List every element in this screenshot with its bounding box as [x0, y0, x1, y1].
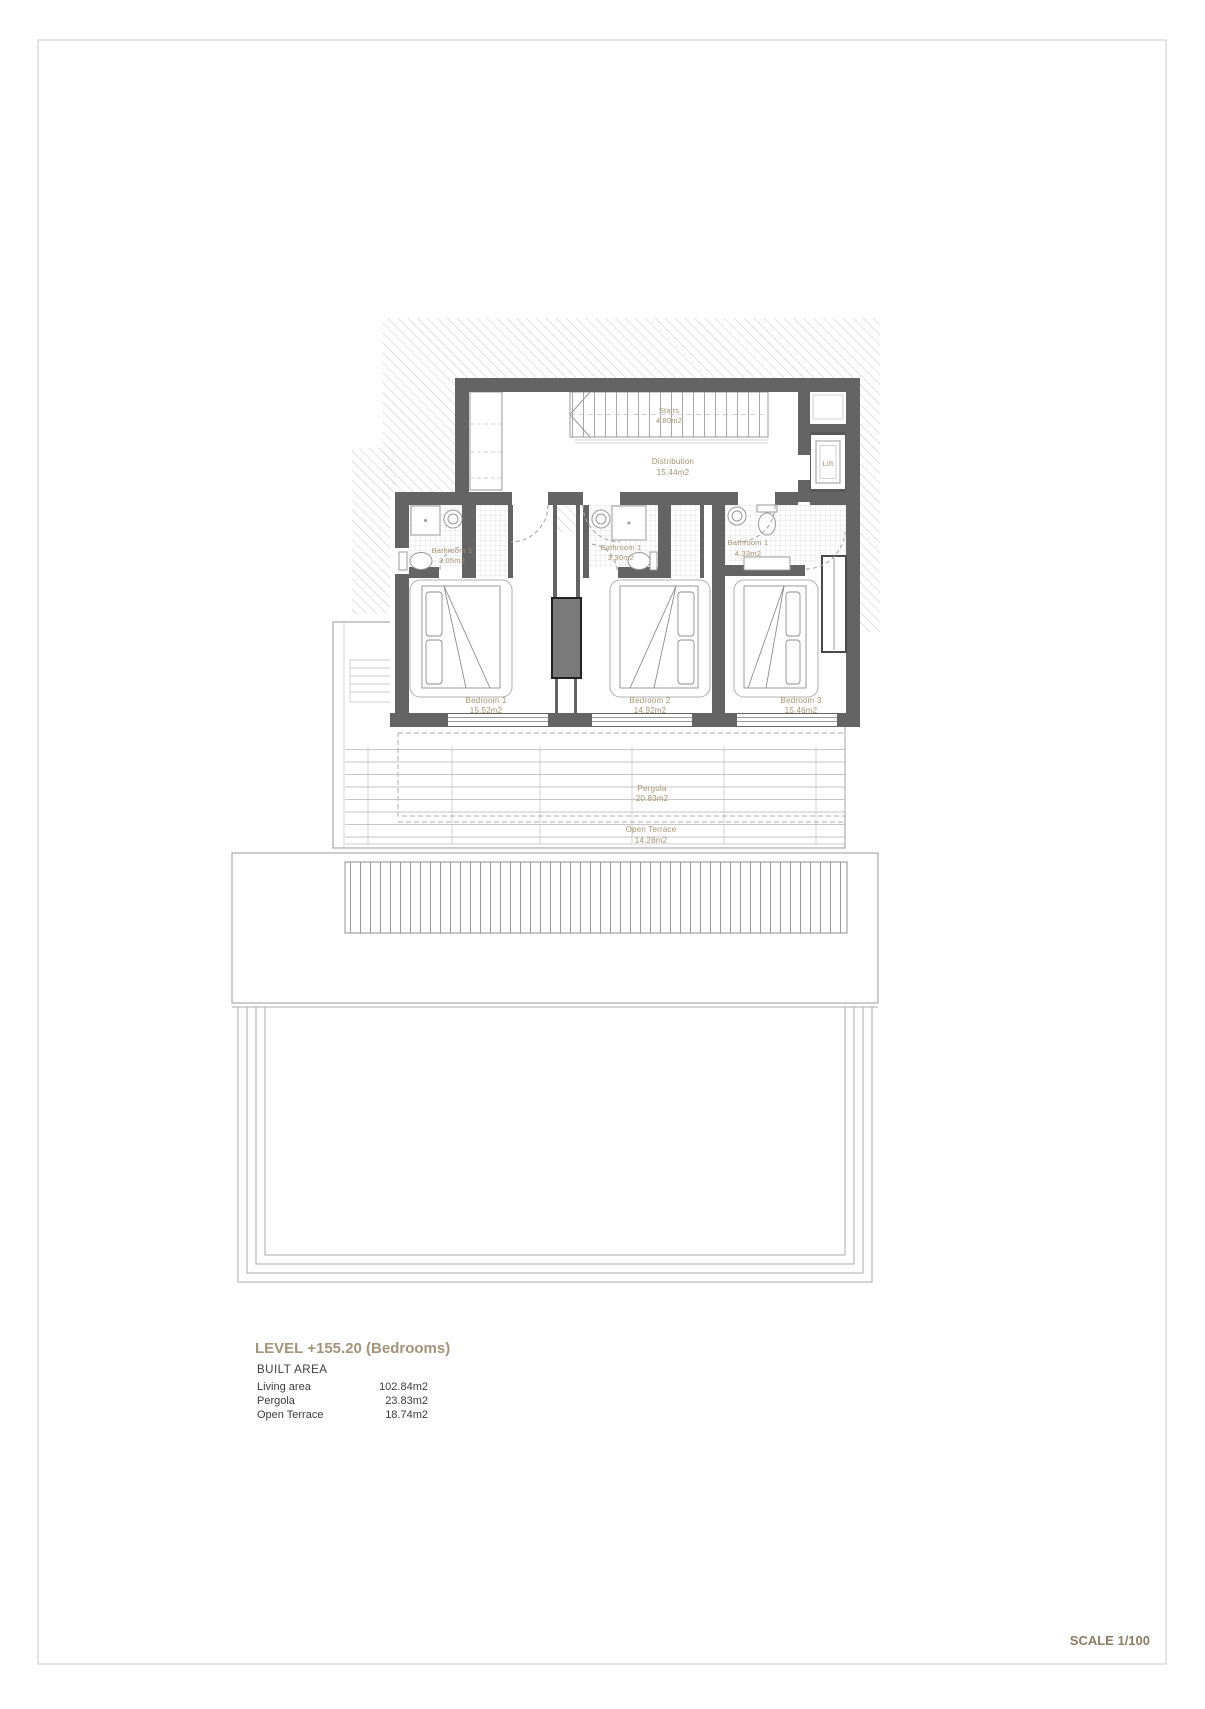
area-row-label: Open Terrace: [257, 1409, 323, 1421]
wall-shaft-west: [553, 505, 557, 598]
lift-label: Lift: [823, 459, 835, 468]
wall-niche-sill: [810, 424, 846, 432]
wall-hall-1: [469, 492, 512, 505]
pergola-label: Pergola: [638, 784, 667, 793]
wall-lift-left-b: [798, 480, 810, 502]
window-bedroom-3: [737, 714, 837, 726]
bathroom2-label: Bathroom 1: [601, 543, 642, 552]
terrace-decking: [345, 746, 845, 844]
lower-level-outline: [232, 853, 878, 1282]
wall-shaft-lower-w: [555, 678, 558, 714]
lift-door-opening: [798, 455, 810, 480]
wall-shaft-east: [576, 505, 580, 598]
wardrobe-strip-1: [476, 505, 508, 578]
bed-icon-bedroom1: [410, 580, 512, 697]
stairs-area: 4.80m2: [656, 416, 682, 425]
area-row-value: 102.84m2: [379, 1381, 428, 1393]
area-row-value: 18.74m2: [385, 1409, 428, 1421]
hatch-top-band: [383, 318, 880, 380]
wall-shaft-lower-e: [574, 678, 577, 714]
shaft-hatch: [557, 505, 576, 532]
toilet-tank-icon: [399, 552, 407, 570]
area-row-value: 23.83m2: [385, 1395, 428, 1407]
wall-west-upper: [455, 392, 469, 502]
scale-label: SCALE 1/100: [1070, 1633, 1150, 1648]
bedroom3-label: Bedroom 3: [781, 696, 822, 705]
wall-jog: [395, 492, 469, 505]
bench-icon: [744, 557, 790, 570]
toilet-icon: [410, 553, 432, 570]
wardrobe-icon: [822, 556, 846, 652]
sheet-border: [38, 40, 1166, 1664]
bed-icon-bedroom2: [610, 580, 710, 697]
bedroom1-area: 15.52m2: [470, 706, 503, 715]
pool-terrace-nested-edges: [232, 1007, 878, 1282]
built-area-table: Living area 102.84m2 Pergola 23.83m2 Ope…: [257, 1381, 428, 1421]
bedroom2-label: Bedroom 2: [630, 696, 671, 705]
wall-hall-3: [620, 492, 738, 505]
bedroom3-area: 15.46m2: [785, 706, 818, 715]
bedroom1-label: Bedroom 1: [466, 696, 507, 705]
wall-north: [455, 378, 860, 392]
bed-icon-bedroom3: [734, 580, 818, 697]
window-bedroom-1: [448, 714, 548, 726]
wall-bed2-bed3: [712, 505, 725, 713]
toilet-icon: [759, 513, 776, 535]
exterior-steps: [350, 660, 394, 702]
floor-plan-drawing: Stairs 4.80m2 Distribution 15.44m2 Lift …: [0, 0, 1205, 1704]
wall-east: [846, 392, 860, 713]
louvre-panel: [345, 862, 847, 933]
hatch-right-band: [858, 380, 880, 632]
toilet-tank-icon: [757, 505, 777, 512]
wall-bath1-east: [462, 505, 476, 578]
distribution-label: Distribution: [652, 457, 694, 466]
wall-hall-5: [810, 492, 846, 505]
bathroom1-area: 3.05m2: [439, 556, 465, 565]
open-terrace-area: 14.28m2: [635, 836, 668, 845]
wall-hall-2: [548, 492, 583, 505]
toilet-tank-icon: [650, 552, 657, 570]
wall-hall-4: [775, 492, 798, 505]
stairs-label: Stairs: [659, 406, 679, 415]
area-row-label: Living area: [257, 1381, 312, 1393]
wardrobe-strip-2: [671, 505, 700, 578]
storage-niche: [810, 392, 846, 422]
open-terrace-label: Open Terrace: [626, 825, 677, 834]
wall-lift-left-a: [798, 392, 810, 455]
wall-bath2-east: [658, 505, 671, 578]
wall-west: [395, 505, 409, 727]
wall-bath2-west: [583, 505, 589, 578]
area-row-label: Pergola: [257, 1395, 296, 1407]
bathroom1-label: Bathroom 1: [432, 546, 473, 555]
title-block: LEVEL +155.20 (Bedrooms) BUILT AREA Livi…: [255, 1340, 1150, 1648]
service-shaft-pillar: [552, 598, 581, 678]
level-title: LEVEL +155.20 (Bedrooms): [255, 1340, 450, 1357]
bathroom3-label: Bathroom 1: [728, 538, 769, 547]
window-bedroom-2: [592, 714, 692, 726]
bathroom3-area: 4.33m2: [735, 549, 761, 558]
wall-strip2: [700, 505, 704, 578]
drawing-sheet: Stairs 4.80m2 Distribution 15.44m2 Lift …: [0, 0, 1205, 1704]
built-area-heading: BUILT AREA: [257, 1364, 327, 1376]
bedroom2-area: 14.92m2: [634, 706, 667, 715]
pergola-area: 20.83m2: [636, 794, 669, 803]
distribution-area: 15.44m2: [657, 468, 690, 477]
bathroom2-area: 3.30m2: [608, 553, 634, 562]
